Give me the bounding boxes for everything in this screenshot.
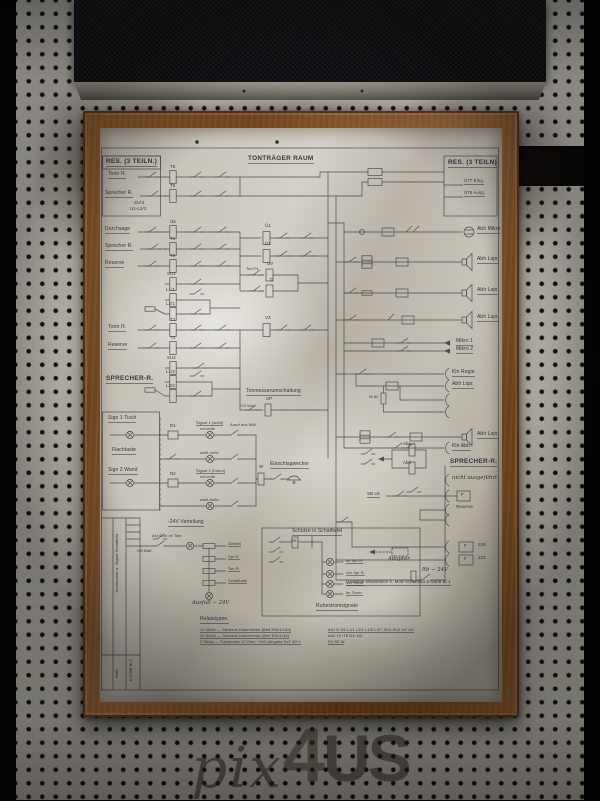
schematic-label: R2 — [170, 472, 176, 477]
schematic-label: Im Spr R. — [346, 559, 363, 564]
wall-edge-left — [0, 0, 16, 800]
schematic-label: Tonmesserumschaltung — [246, 389, 301, 396]
schematic-label: Abh Lspr. — [477, 432, 499, 439]
schematic-label: W 80 — [369, 395, 378, 399]
schematic-label: Ü2 — [265, 242, 271, 247]
schematic-labels: TONTRÄGER RAUMRES. (3 TEILN.)RES. (3 TEI… — [100, 128, 502, 702]
schematic-label: Kommando u. Signal Schaltbild — [115, 534, 119, 593]
schematic-label: +24 Batt — [136, 549, 151, 553]
schematic-label: D — [270, 278, 273, 283]
schematic-label: L1/1 — [166, 288, 175, 293]
schematic-label: Ü5 — [170, 220, 176, 225]
schematic-label: SB Uk — [367, 492, 380, 498]
schematic-label: Ü77 Eing. — [464, 179, 484, 185]
schematic-label: SPRECHER-R. — [106, 376, 153, 384]
schematic-label: L2/1 — [166, 302, 175, 307]
schematic-label: nicht ausgeführt — [452, 476, 497, 481]
schematic-label: T6 — [170, 184, 175, 189]
schematic-label: Durchsage — [105, 227, 130, 234]
photo-scene: { "colors":{"wood_frame":"#7a4a22","pegb… — [0, 0, 600, 800]
schematic-label: Ü1 — [265, 224, 271, 229]
schematic-label: Kln Abh. — [452, 444, 471, 451]
speaker-frame — [74, 82, 546, 100]
schematic-label: Ab2 — [403, 461, 411, 466]
schematic-label: SU2 — [167, 356, 176, 361]
schematic-label: F — [464, 557, 467, 562]
schematic-label: Anl Schr im Takt — [152, 534, 182, 538]
schematic-label: rot-helle — [200, 427, 215, 431]
schematic-label: Spr R. — [228, 555, 240, 560]
schematic-label: weiß-helle — [200, 451, 219, 455]
schematic-label: Ab2 T1−T8 Ü1−Ü3 — [328, 634, 362, 638]
schematic-label: Ab1 — [403, 442, 411, 447]
schematic-label: Abh Mikro — [477, 227, 500, 234]
schematic-label: SU1 — [167, 272, 176, 277]
schematic-label: Tontr R. — [108, 172, 126, 179]
schematic-label: T2 — [170, 254, 175, 259]
schematic-label: Schalttafel — [228, 579, 247, 584]
schematic-label: T4 — [170, 336, 175, 341]
schematic-label: Abh Lspr. — [477, 257, 499, 264]
schematic-label: UV — [267, 262, 273, 267]
schematic-label: rot-helle — [200, 475, 215, 479]
schematic-label: U1-L2/3 — [130, 207, 146, 212]
schematic-label: Ü76 Ausg. — [464, 191, 485, 197]
schematic-label: Abh Lspr. — [477, 288, 499, 295]
pegboard-panel-seam — [516, 146, 584, 186]
schematic-label: SR — [291, 539, 297, 543]
schematic-label: Ton R. — [228, 567, 240, 572]
schematic-label: 2 Stück — Flachrelais 12 Ohm −100 (Angab… — [200, 640, 301, 645]
schematic-label: R1 R2 W — [328, 640, 344, 645]
schematic-label: Ton/T4 — [246, 267, 259, 271]
schematic-label: weiß-helle — [200, 498, 219, 502]
schematic-label: R1 — [170, 424, 176, 429]
schematic-label: 238 — [478, 543, 486, 548]
schematic-label: -24V Verteilung — [168, 520, 204, 527]
schematic-label: W — [259, 465, 263, 470]
schematic-label: Reserve — [456, 505, 473, 510]
schematic-label: RES. (3 TEILN) — [448, 160, 497, 168]
schematic-label: 233 — [478, 556, 486, 561]
schematic-label: SPRECHER-R. — [450, 459, 497, 467]
schematic-label: Mikro 2 — [456, 347, 473, 354]
schematic-label: Abh Lspr. — [452, 382, 474, 389]
schematic-label: T5 — [170, 165, 175, 170]
speaker-grille — [74, 0, 546, 82]
schematic-label: Ausfall − 24V — [192, 601, 229, 606]
schematic-label: D-5608 Bl 2 — [129, 659, 133, 681]
schematic-poster: TONTRÄGER RAUMRES. (3 TEILN.)RES. (3 TEI… — [100, 128, 502, 702]
schematic-label: Sign 1 Tisch — [108, 416, 136, 423]
schematic-label: Flachtaste — [112, 448, 136, 455]
schematic-label: F — [464, 544, 467, 549]
schematic-label: Ruhestromsignale — [316, 604, 358, 611]
schematic-label: L2/2 — [166, 384, 175, 389]
schematic-label: Gestell — [228, 542, 241, 547]
schematic-label: T3 — [170, 318, 175, 323]
schematic-label: Einschlagwecker — [270, 462, 309, 469]
schematic-label: Sprecher R. — [105, 191, 133, 198]
schematic-label: RES. (3 TEILN.) — [106, 159, 157, 167]
schematic-label: Relaistypen. — [200, 617, 229, 624]
schematic-label: Rb − 24V — [422, 568, 448, 573]
schematic-label: Kln Regie — [452, 370, 475, 377]
schematic-label: Adapter — [388, 557, 410, 562]
schematic-label: Abh Lspr. — [477, 315, 499, 322]
schematic-label: TONTRÄGER RAUM — [248, 156, 314, 164]
schematic-label: Reserve — [108, 343, 127, 350]
schematic-label: Mikro 1 — [456, 339, 473, 346]
wall-edge-right — [584, 0, 600, 800]
schematic-label: F — [461, 493, 464, 498]
schematic-label: SU/3 — [134, 201, 144, 206]
schematic-label: Vor Tonm. — [346, 581, 364, 586]
schematic-label: Sprecher R. — [105, 244, 133, 251]
schematic-label: Tontr R. — [108, 325, 126, 332]
schematic-label: Im Tonm. — [346, 591, 363, 596]
schematic-label: EMB — [115, 669, 119, 678]
schematic-label: UP — [266, 397, 272, 402]
schematic-label: Schütze in Schalttafel — [292, 529, 342, 536]
schematic-label: L1/2 — [166, 370, 175, 375]
schematic-label: +24 Von — [239, 404, 254, 408]
schematic-label: T1 — [170, 237, 175, 242]
schematic-label: Vor Spr R. — [346, 571, 365, 576]
schematic-label: Reserve — [105, 261, 124, 268]
schematic-label: Anruf aus MW — [230, 423, 256, 427]
schematic-label: Sign 2 Wand — [108, 468, 138, 475]
schematic-label: V3 — [265, 316, 271, 321]
